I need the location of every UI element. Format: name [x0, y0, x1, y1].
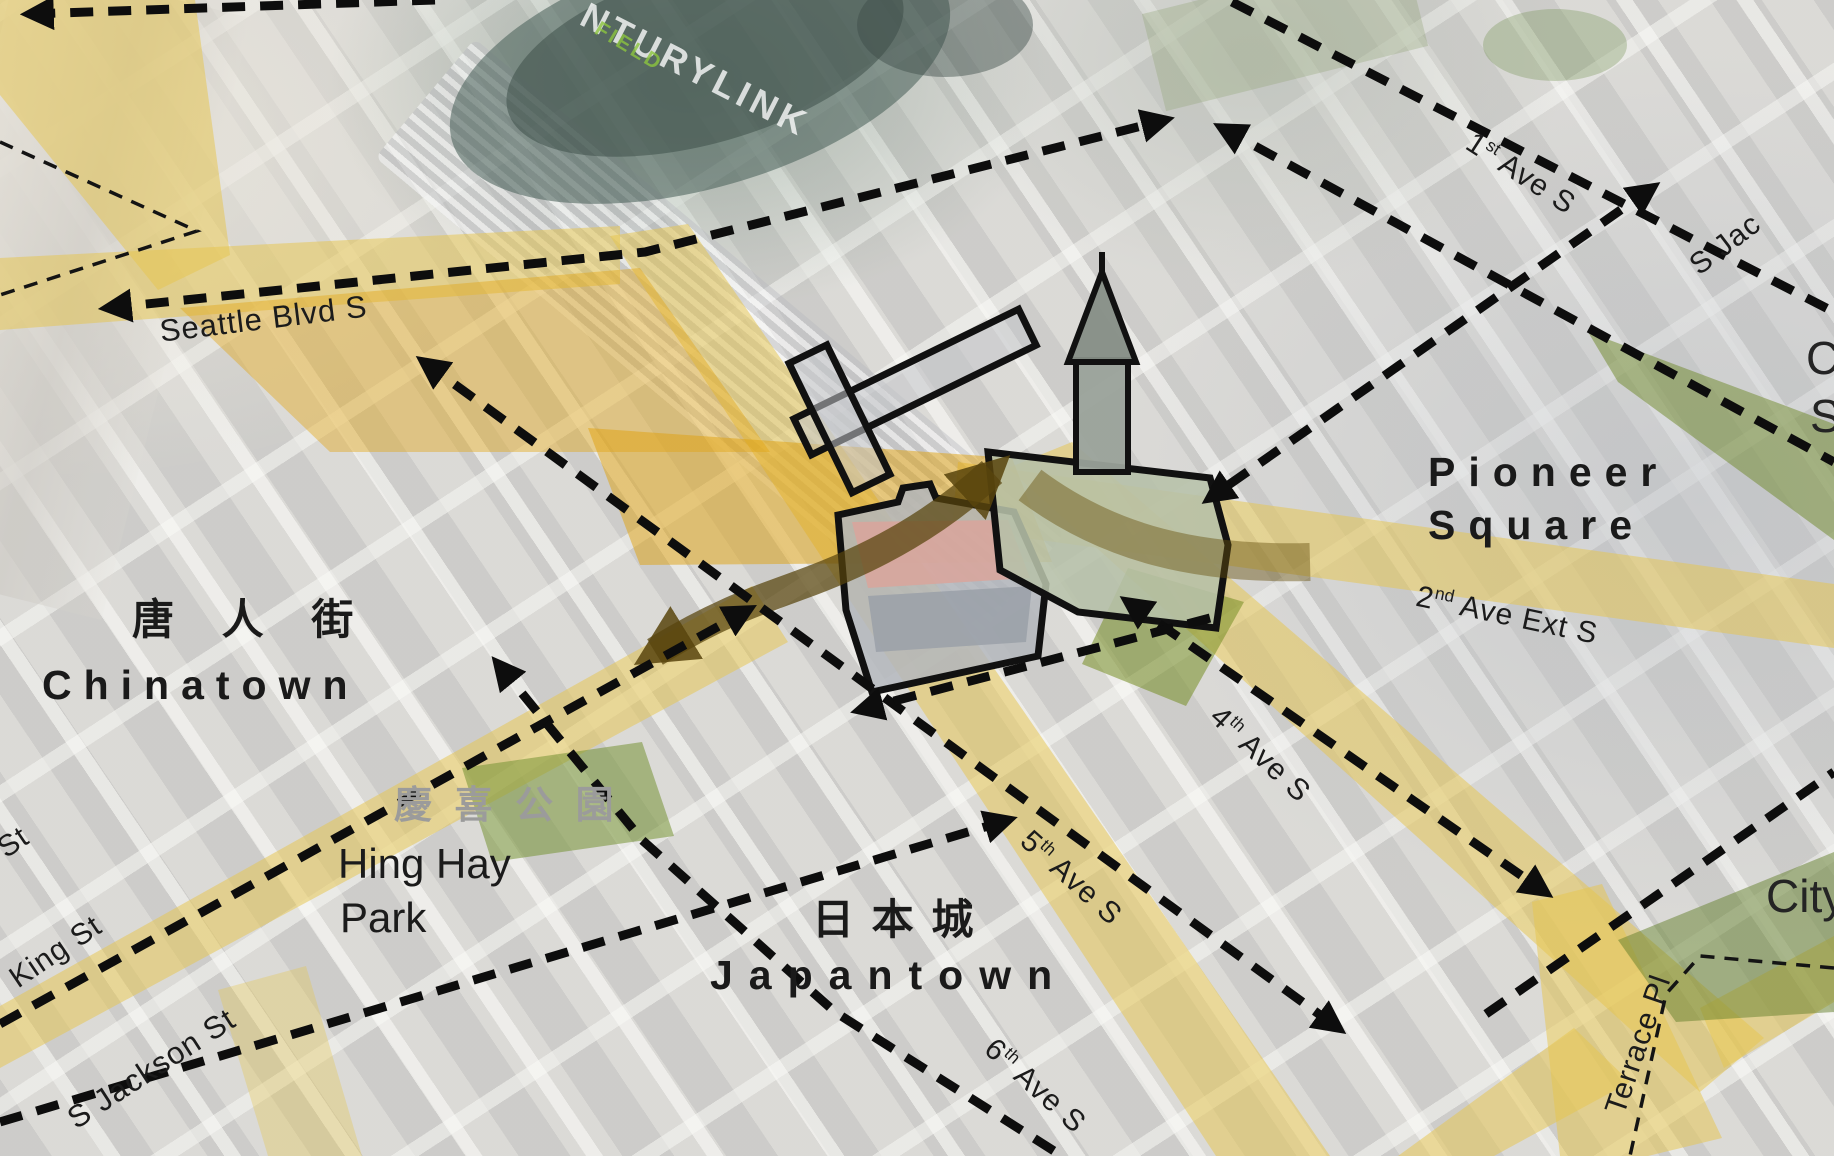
clock-tower-pyramid-roof — [1068, 272, 1136, 362]
park-label-hing-hay-cjk: 慶 喜 公 園 — [394, 786, 620, 826]
park-label-park: Park — [340, 896, 426, 941]
park-patch-north — [1483, 9, 1627, 81]
pioneer-square-line2: Square — [1428, 499, 1669, 552]
neighborhood-label-japantown: Japantown — [710, 954, 1068, 997]
union-station-roof-ridge — [868, 586, 1032, 652]
station-clock-tower — [1076, 360, 1128, 472]
edge-label-city: City — [1766, 872, 1834, 921]
aerial-diagram-map: NTURYLINK FIELD 1st Ave S S Jac Seattle … — [0, 0, 1834, 1156]
route-highlight-maynard — [218, 966, 362, 1156]
neighborhood-label-japantown-cjk: 日 本 城 — [812, 898, 976, 943]
neighborhood-label-pioneer-square: Pioneer Square — [1428, 446, 1669, 553]
edge-label-c-partial: C — [1806, 334, 1834, 383]
park-label-hing-hay: Hing Hay — [338, 842, 511, 887]
edge-label-s-partial: S — [1810, 392, 1834, 441]
route-highlight-top-left — [0, 0, 230, 290]
pioneer-square-line1: Pioneer — [1428, 446, 1669, 499]
neighborhood-label-chinatown-cjk: 唐 人 街 — [132, 598, 371, 643]
neighborhood-label-chinatown: Chinatown — [42, 664, 360, 707]
ballfield-green — [1142, 0, 1428, 111]
